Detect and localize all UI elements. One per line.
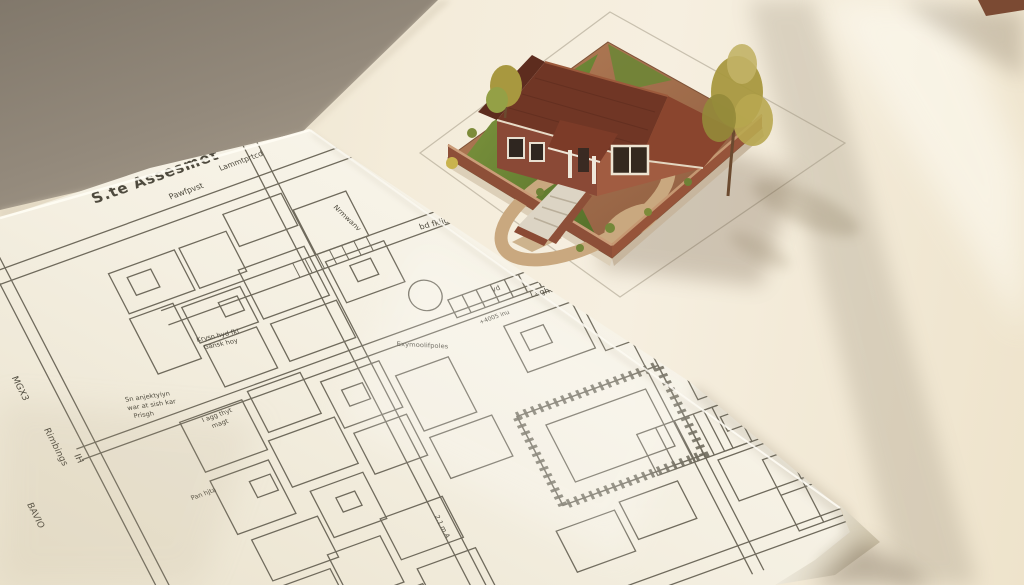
porch-post-right [592, 156, 596, 184]
window-left-1 [508, 138, 524, 158]
window-left-2 [530, 143, 544, 161]
porch-door [578, 148, 589, 172]
scene: S.te Assesmet Pawfpvst Lammtprtcd bd fki… [0, 0, 1024, 585]
scene-canvas: S.te Assesmet Pawfpvst Lammtprtcd bd fki… [0, 0, 1024, 585]
porch-post-left [568, 150, 572, 178]
